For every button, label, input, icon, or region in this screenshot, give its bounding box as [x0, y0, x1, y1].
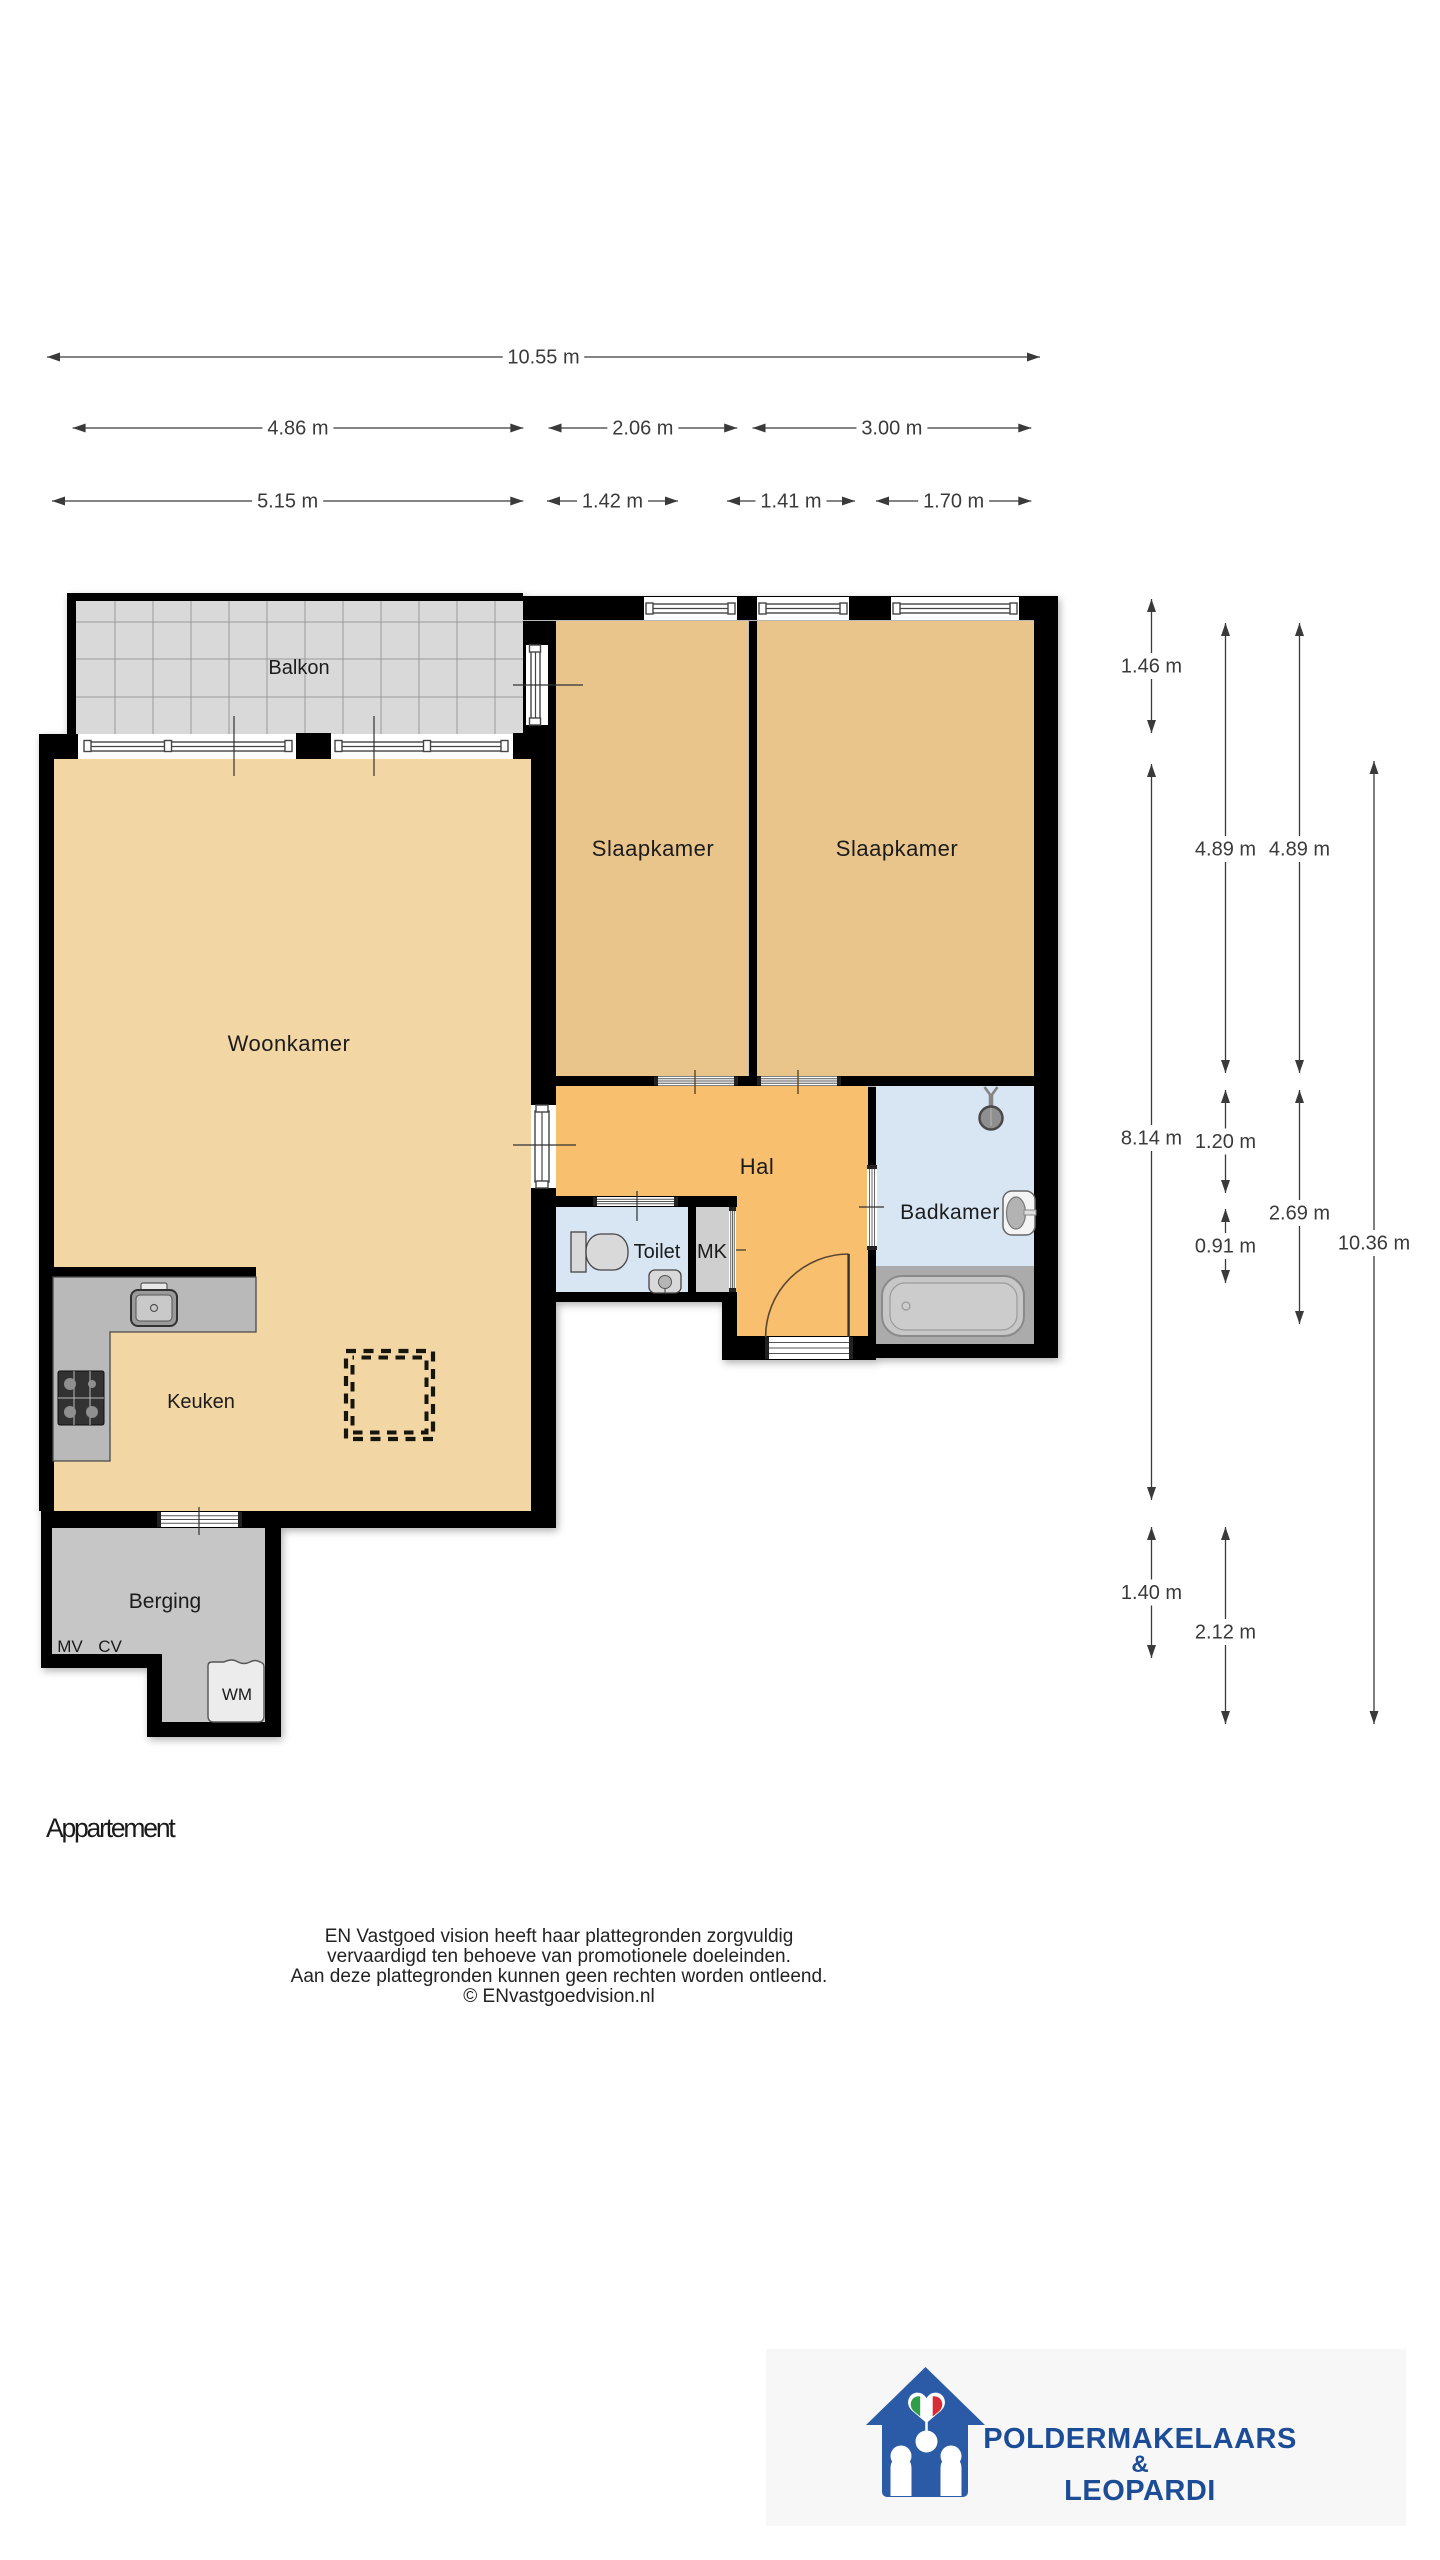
- svg-text:Woonkamer: Woonkamer: [228, 1031, 351, 1056]
- svg-text:1.40 m: 1.40 m: [1121, 1582, 1182, 1604]
- svg-text:5.15 m: 5.15 m: [257, 491, 318, 513]
- svg-text:10.36 m: 10.36 m: [1338, 1233, 1410, 1255]
- svg-text:8.14 m: 8.14 m: [1121, 1128, 1182, 1150]
- svg-text:1.46 m: 1.46 m: [1121, 656, 1182, 678]
- svg-text:2.12 m: 2.12 m: [1195, 1622, 1256, 1644]
- svg-text:Hal: Hal: [740, 1154, 775, 1179]
- svg-text:4.86 m: 4.86 m: [267, 418, 328, 440]
- svg-text:MV: MV: [57, 1637, 83, 1656]
- svg-text:1.70 m: 1.70 m: [923, 491, 984, 513]
- svg-text:EN Vastgoed vision heeft haar: EN Vastgoed vision heeft haar plattegron…: [325, 1926, 794, 1947]
- svg-text:4.89 m: 4.89 m: [1195, 839, 1256, 861]
- svg-text:4.89 m: 4.89 m: [1269, 839, 1330, 861]
- svg-text:WM: WM: [222, 1685, 252, 1704]
- svg-text:Balkon: Balkon: [268, 657, 329, 679]
- svg-text:Keuken: Keuken: [167, 1391, 235, 1413]
- svg-text:1.20 m: 1.20 m: [1195, 1131, 1256, 1153]
- svg-text:2.69 m: 2.69 m: [1269, 1203, 1330, 1225]
- svg-text:10.55 m: 10.55 m: [507, 347, 579, 369]
- svg-text:&: &: [1131, 2451, 1148, 2478]
- svg-text:1.41 m: 1.41 m: [760, 491, 821, 513]
- svg-text:3.00 m: 3.00 m: [861, 418, 922, 440]
- svg-text:2.06 m: 2.06 m: [612, 418, 673, 440]
- svg-text:0.91 m: 0.91 m: [1195, 1236, 1256, 1258]
- svg-text:MK: MK: [697, 1241, 728, 1263]
- svg-text:Toilet: Toilet: [634, 1241, 681, 1263]
- svg-text:Appartement: Appartement: [46, 1813, 176, 1843]
- svg-text:Berging: Berging: [129, 1590, 201, 1613]
- svg-text:Slaapkamer: Slaapkamer: [592, 836, 714, 861]
- svg-text:© ENvastgoedvision.nl: © ENvastgoedvision.nl: [463, 1986, 654, 2007]
- svg-text:vervaardigd ten behoeve van pr: vervaardigd ten behoeve van promotionele…: [327, 1946, 791, 1967]
- svg-text:LEOPARDI: LEOPARDI: [1064, 2475, 1216, 2507]
- svg-text:Slaapkamer: Slaapkamer: [836, 836, 958, 861]
- svg-text:1.42 m: 1.42 m: [582, 491, 643, 513]
- svg-text:Badkamer: Badkamer: [900, 1201, 1000, 1224]
- svg-text:CV: CV: [98, 1637, 122, 1656]
- svg-text:Aan deze plattegronden kunnen: Aan deze plattegronden kunnen geen recht…: [291, 1966, 828, 1987]
